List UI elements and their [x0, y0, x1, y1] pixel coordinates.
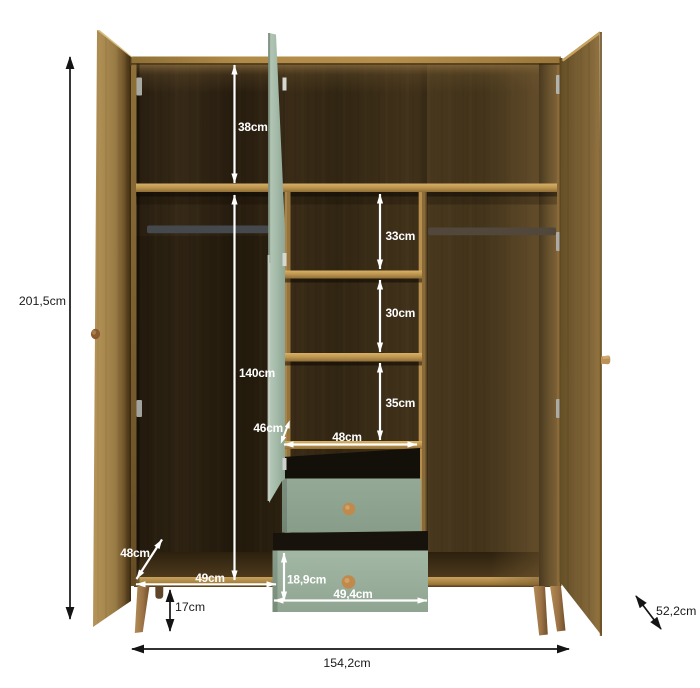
svg-text:38cm: 38cm — [238, 120, 268, 134]
svg-text:35cm: 35cm — [386, 396, 416, 410]
svg-text:140cm: 140cm — [239, 366, 275, 380]
svg-text:18,9cm: 18,9cm — [287, 573, 326, 587]
svg-text:49,4cm: 49,4cm — [333, 587, 372, 601]
svg-text:30cm: 30cm — [386, 306, 416, 320]
svg-text:49cm: 49cm — [195, 571, 225, 585]
svg-text:33cm: 33cm — [386, 229, 416, 243]
svg-text:17cm: 17cm — [175, 600, 205, 614]
svg-text:48cm: 48cm — [120, 546, 150, 560]
svg-text:46cm: 46cm — [253, 421, 283, 435]
svg-text:52,2cm: 52,2cm — [656, 604, 696, 618]
svg-text:154,2cm: 154,2cm — [323, 656, 370, 670]
svg-text:201,5cm: 201,5cm — [19, 294, 66, 308]
svg-text:48cm: 48cm — [332, 430, 362, 444]
